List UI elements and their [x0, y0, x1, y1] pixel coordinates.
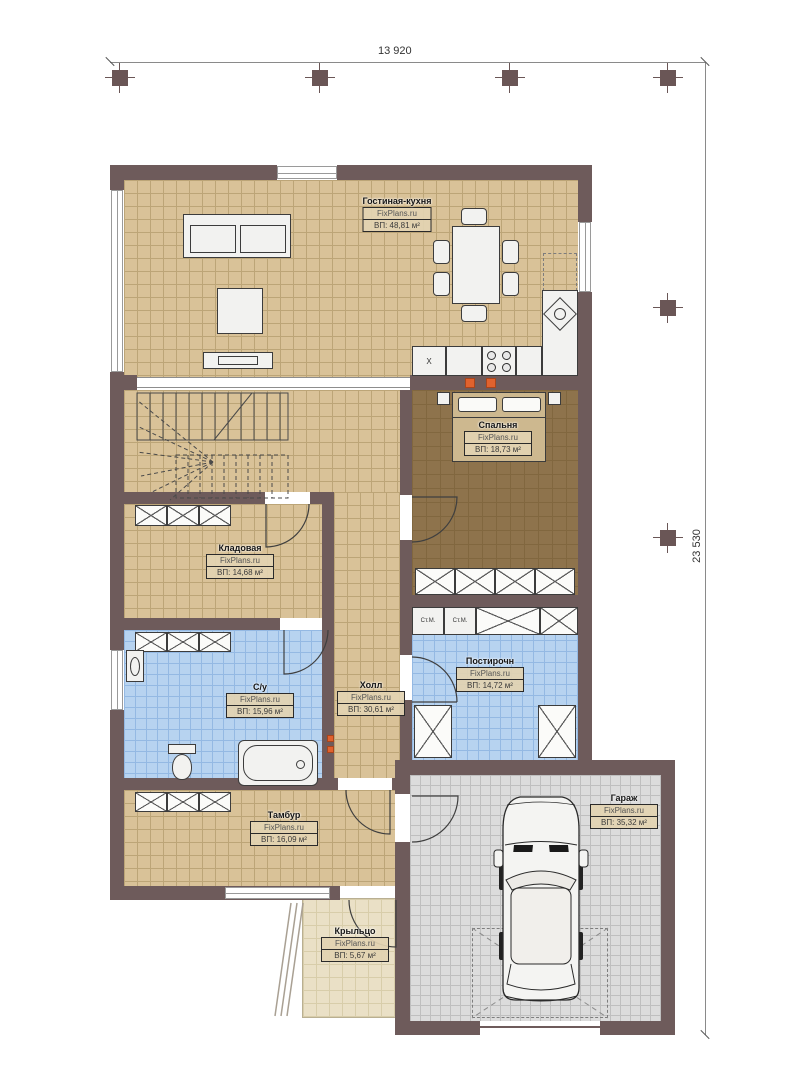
- wall-top: [110, 165, 277, 180]
- vent-marker: [465, 378, 475, 388]
- room-name: Тамбур: [250, 810, 318, 820]
- cabinet-xbox: [135, 632, 167, 652]
- dimension-line-right: [705, 62, 706, 1035]
- wardrobe-xbox: [455, 568, 495, 595]
- survey-marker: [653, 63, 683, 93]
- window-bathroom-left: [111, 650, 123, 710]
- room-label-storage: Кладовая FixPlans.ru ВП: 14,68 м²: [206, 543, 274, 579]
- upper-cabinet-dashed: [543, 253, 577, 291]
- sink-bowl: [130, 657, 140, 676]
- nightstand: [548, 392, 561, 405]
- room-label-hall: Холл FixPlans.ru ВП: 30,61 м²: [337, 680, 405, 716]
- burner: [502, 363, 511, 372]
- vent-marker: [327, 735, 334, 742]
- chair: [461, 305, 487, 322]
- survey-marker: [305, 63, 335, 93]
- wall-bath-top: [124, 618, 280, 630]
- burner: [487, 363, 496, 372]
- toilet-tank: [168, 744, 196, 754]
- cabinet-xbox: [540, 607, 578, 635]
- wall-garage-left: [395, 842, 410, 1035]
- room-brand: FixPlans.ru: [456, 667, 524, 680]
- vent-marker: [486, 378, 496, 388]
- wall-storage-top: [310, 492, 334, 504]
- wall-top: [337, 165, 592, 180]
- stove: [482, 346, 516, 376]
- washer-label: Ст.М.: [421, 618, 436, 624]
- tv: [218, 356, 258, 365]
- wall-storage-top: [124, 492, 265, 504]
- room-name: Холл: [337, 680, 405, 690]
- survey-marker: [105, 63, 135, 93]
- chair: [502, 272, 519, 296]
- wall-left: [110, 372, 124, 650]
- bathroom-sink: [126, 650, 144, 682]
- floor-stair-hall: [124, 390, 400, 492]
- room-label-laundry: Постирочн FixPlans.ru ВП: 14,72 м²: [456, 656, 524, 692]
- wall-garage-left: [395, 760, 410, 794]
- sofa: [183, 214, 291, 258]
- room-brand: FixPlans.ru: [363, 207, 432, 220]
- coffee-table: [217, 288, 263, 334]
- kitchen-counter: [516, 346, 542, 376]
- porch-steps: [275, 903, 303, 1016]
- room-brand: FixPlans.ru: [337, 691, 405, 704]
- floor-plan: 13 920 23 530: [0, 0, 792, 1080]
- room-name: Спальня: [464, 420, 532, 430]
- cabinet-xbox: [199, 792, 231, 812]
- room-area: ВП: 35,32 м²: [590, 817, 658, 829]
- window-tambur-bottom: [225, 887, 330, 899]
- dining-table: [452, 226, 500, 304]
- wall-garage-top: [395, 760, 675, 775]
- wall-left: [110, 710, 124, 900]
- window-dining-right: [579, 222, 591, 292]
- blanket-line: [453, 417, 545, 418]
- room-brand: FixPlans.ru: [226, 693, 294, 706]
- room-area: ВП: 15,96 м²: [226, 706, 294, 718]
- cabinet-xbox: [199, 632, 231, 652]
- room-area: ВП: 18,73 м²: [464, 444, 532, 456]
- room-label-tambur: Тамбур FixPlans.ru ВП: 16,09 м²: [250, 810, 318, 846]
- wall-garage-right: [661, 760, 675, 1035]
- kitchen-counter: [446, 346, 482, 376]
- pillow: [458, 397, 497, 412]
- cabinet-xbox: [135, 792, 167, 812]
- room-name: Гараж: [590, 793, 658, 803]
- sofa-cushion: [240, 225, 286, 253]
- wall-stub: [124, 375, 137, 390]
- washer-label: Ст.М.: [453, 618, 468, 624]
- garage-door-swing-dashed: [472, 928, 608, 1018]
- window-top: [277, 166, 337, 179]
- survey-marker: [653, 523, 683, 553]
- toilet-bowl: [172, 754, 192, 780]
- garage-gate: [480, 1026, 600, 1028]
- cabinet-xbox: [538, 705, 576, 758]
- room-brand: FixPlans.ru: [250, 821, 318, 834]
- chair: [433, 272, 450, 296]
- room-brand: FixPlans.ru: [321, 937, 389, 950]
- wall-hall-right: [400, 540, 412, 655]
- dimension-line-top: [110, 62, 705, 63]
- survey-marker: [495, 63, 525, 93]
- burner: [487, 351, 496, 360]
- chair: [461, 208, 487, 225]
- wall-right: [578, 165, 592, 222]
- cabinet-xbox: [199, 505, 231, 526]
- sofa-cushion: [190, 225, 236, 253]
- room-name: С/у: [226, 682, 294, 692]
- cabinet-xbox: [167, 505, 199, 526]
- room-name: Гостиная-кухня: [363, 196, 432, 206]
- room-brand: FixPlans.ru: [464, 431, 532, 444]
- room-area: ВП: 14,72 м²: [456, 680, 524, 692]
- dimension-height-label: 23 530: [691, 529, 703, 563]
- chair: [433, 240, 450, 264]
- room-name: Постирочн: [456, 656, 524, 666]
- wall-hall-right: [400, 390, 412, 495]
- fridge: Х: [412, 346, 446, 376]
- sink-bowl: [552, 306, 569, 323]
- dimension-width-label: 13 920: [378, 45, 412, 57]
- fridge-label: Х: [426, 357, 431, 366]
- vent-marker: [327, 746, 334, 753]
- pillow: [502, 397, 541, 412]
- bathtub-drain: [296, 760, 305, 769]
- room-name: Крыльцо: [321, 926, 389, 936]
- room-area: ВП: 16,09 м²: [250, 834, 318, 846]
- cabinet-xbox: [135, 505, 167, 526]
- cabinet-xbox: [167, 792, 199, 812]
- wall-kitchen: [410, 375, 592, 390]
- cabinet-xbox: [414, 705, 452, 758]
- washing-machine: Ст.М.: [412, 607, 444, 635]
- room-area: ВП: 5,67 м²: [321, 950, 389, 962]
- opening-living-hall: [137, 377, 410, 388]
- wall-left: [110, 165, 124, 190]
- window-living-left: [111, 190, 123, 372]
- wall-right: [578, 292, 592, 760]
- nightstand: [437, 392, 450, 405]
- burner: [502, 351, 511, 360]
- wall-garage-bottom: [600, 1021, 675, 1035]
- cabinet-xbox: [476, 607, 540, 635]
- bathtub: [238, 740, 318, 786]
- room-label-bedroom: Спальня FixPlans.ru ВП: 18,73 м²: [464, 420, 532, 456]
- room-area: ВП: 30,61 м²: [337, 704, 405, 716]
- wall-bedroom-laundry: [412, 595, 578, 607]
- washing-machine: Ст.М.: [444, 607, 476, 635]
- room-area: ВП: 14,68 м²: [206, 567, 274, 579]
- wardrobe-xbox: [535, 568, 575, 595]
- room-name: Кладовая: [206, 543, 274, 553]
- chair: [502, 240, 519, 264]
- wardrobe-xbox: [495, 568, 535, 595]
- room-brand: FixPlans.ru: [206, 554, 274, 567]
- room-label-bath: С/у FixPlans.ru ВП: 15,96 м²: [226, 682, 294, 718]
- room-label-living: Гостиная-кухня FixPlans.ru ВП: 48,81 м²: [363, 196, 432, 232]
- tv-stand: [203, 352, 273, 369]
- cabinet-xbox: [167, 632, 199, 652]
- room-area: ВП: 48,81 м²: [363, 220, 432, 232]
- room-label-porch: Крыльцо FixPlans.ru ВП: 5,67 м²: [321, 926, 389, 962]
- wall-garage-bottom: [395, 1021, 480, 1035]
- survey-marker: [653, 293, 683, 323]
- wardrobe-xbox: [415, 568, 455, 595]
- floor-hall-corridor: [334, 492, 400, 778]
- room-brand: FixPlans.ru: [590, 804, 658, 817]
- room-label-garage: Гараж FixPlans.ru ВП: 35,32 м²: [590, 793, 658, 829]
